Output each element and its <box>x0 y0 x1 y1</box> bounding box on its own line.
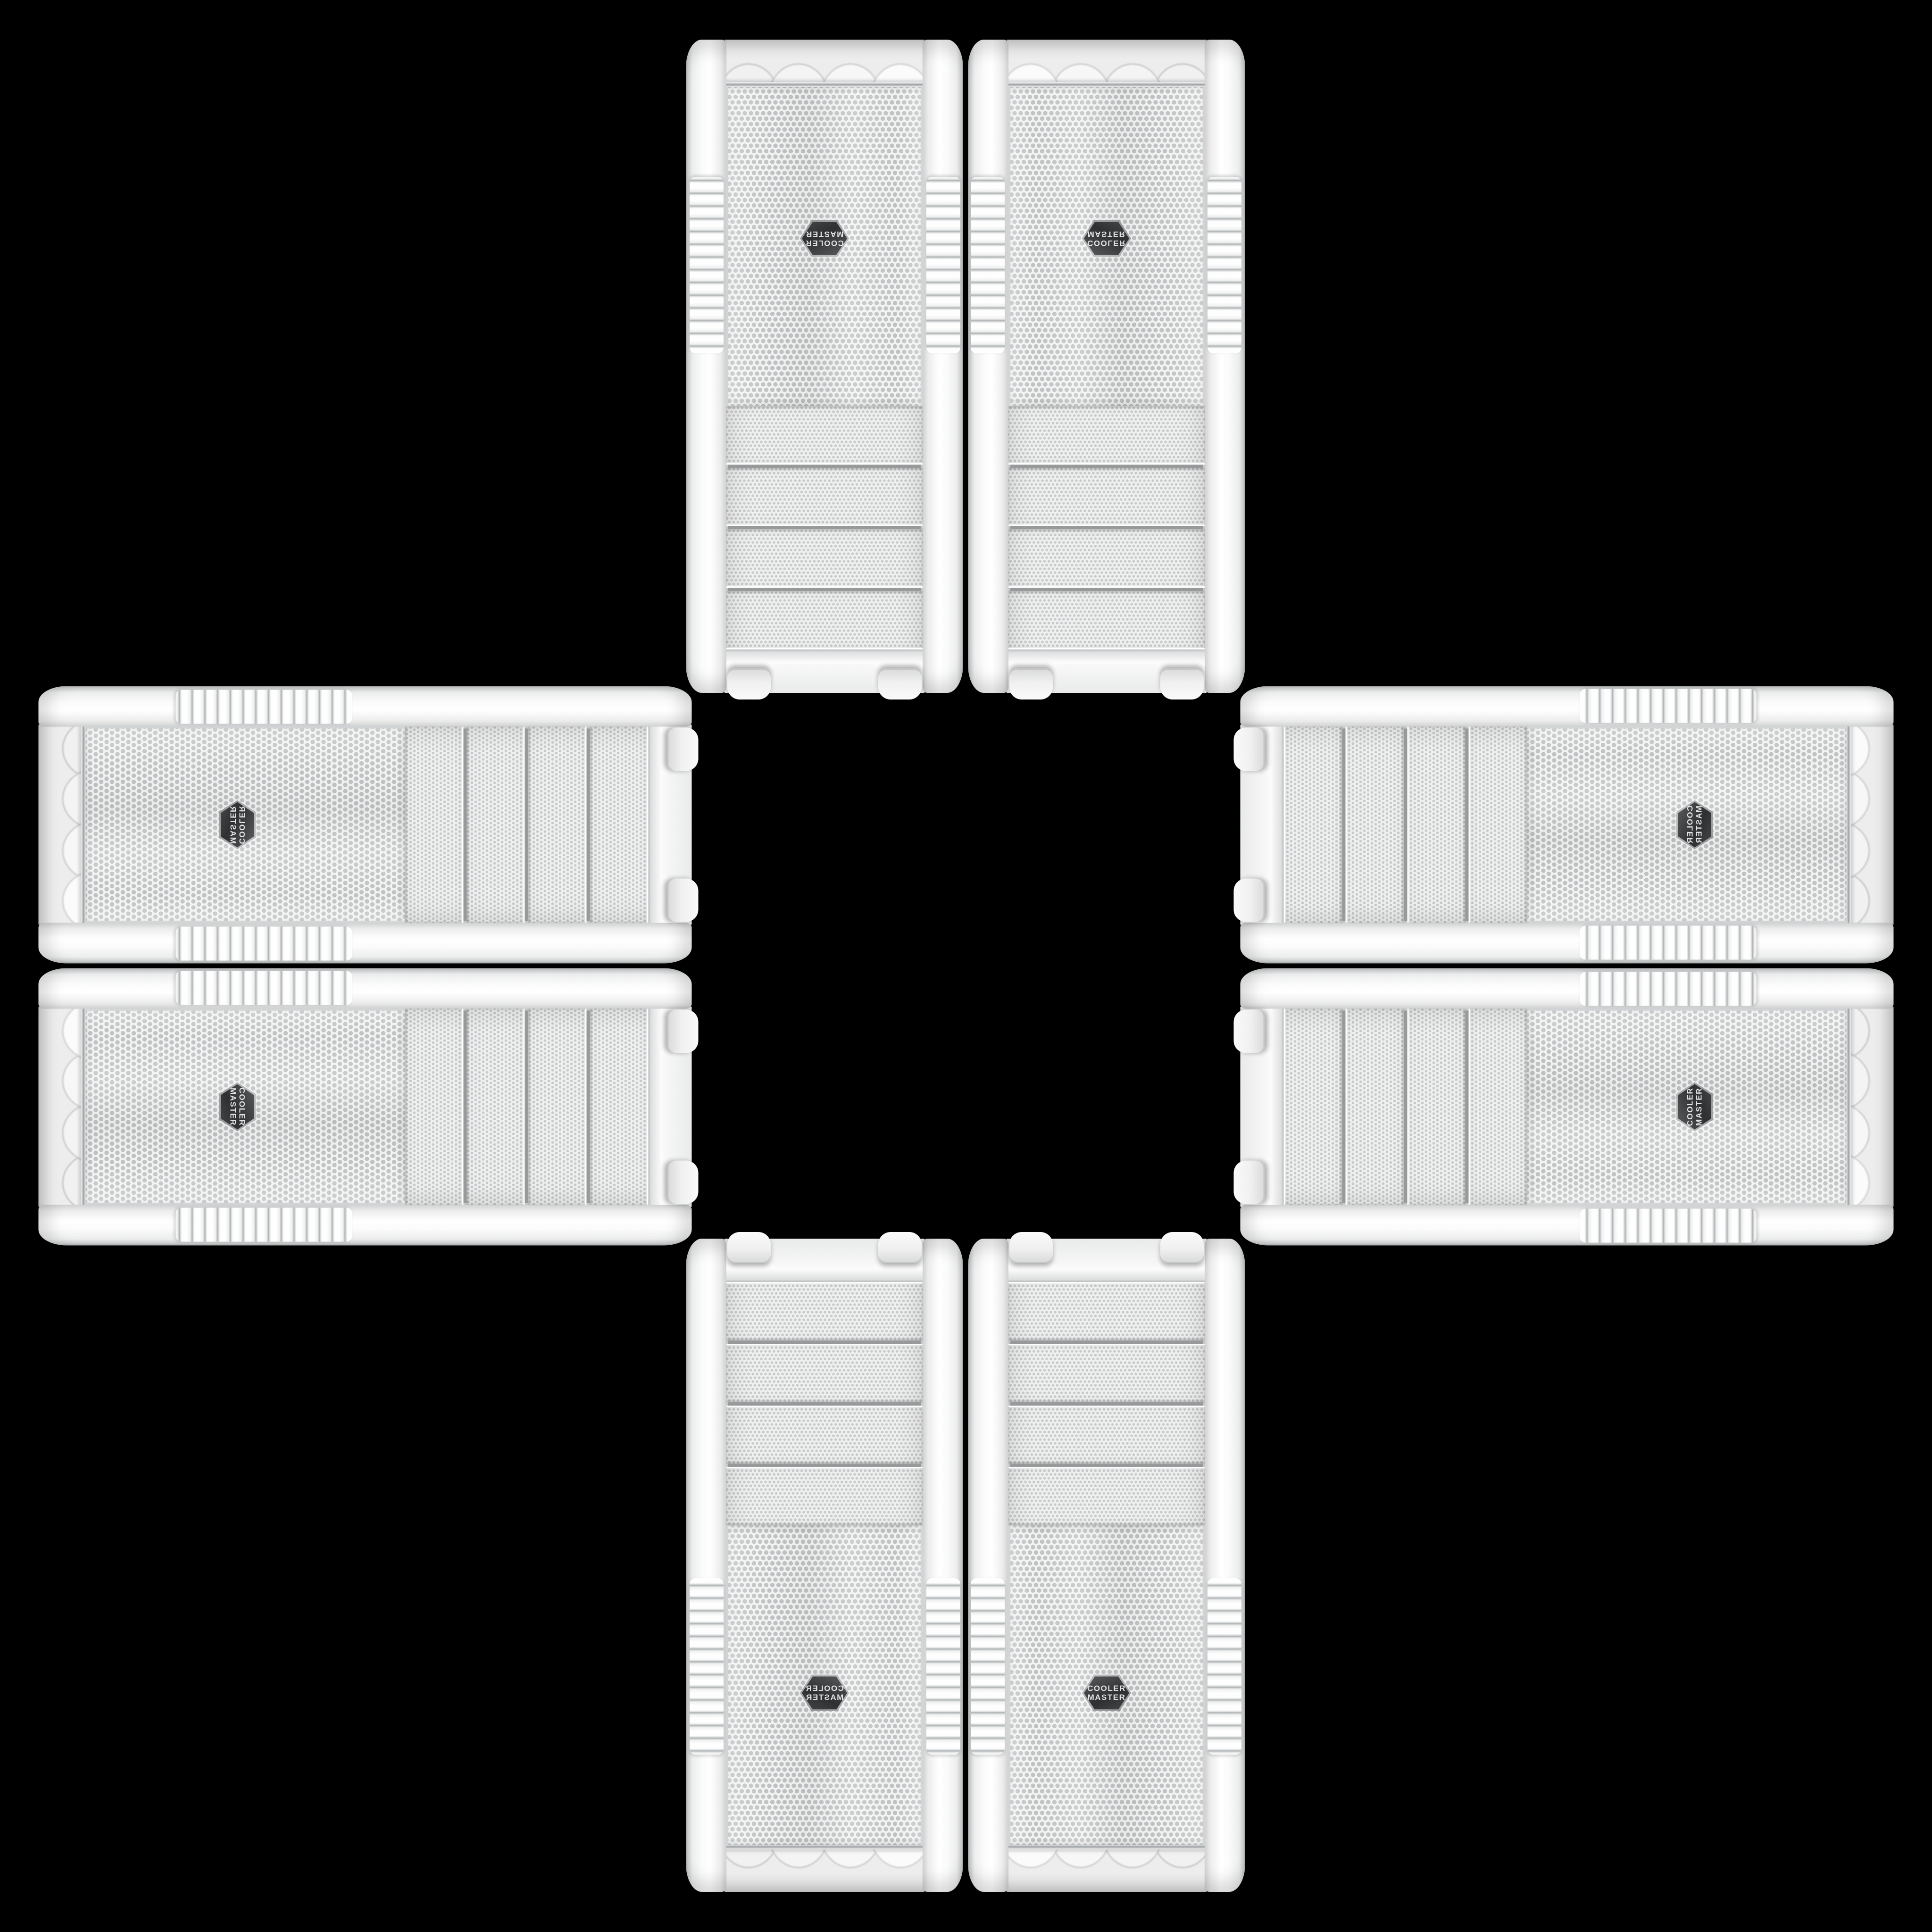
logo-text-line1: COOLER <box>805 1684 844 1693</box>
chrome-trim <box>1847 1008 1851 1206</box>
grip-ridges <box>175 690 352 724</box>
side-rail-right <box>686 40 726 693</box>
logo-text-line1: COOLER <box>1686 806 1695 844</box>
logo-text-line2: MASTER <box>806 1693 844 1702</box>
drive-bay-cover <box>1008 468 1205 526</box>
grip-ridges <box>690 177 724 353</box>
front-mesh-panel: COOLER MASTER <box>726 1525 923 1845</box>
side-rail-right <box>686 1239 726 1892</box>
logo-text-line2: MASTER <box>228 806 237 844</box>
side-rail-left <box>39 923 692 964</box>
drive-bay-cover <box>726 468 923 526</box>
drive-bay-cover <box>726 1344 923 1402</box>
side-rail-right <box>39 686 692 727</box>
drive-bay-cover <box>726 1282 923 1341</box>
front-mesh-panel: COOLER MASTER <box>726 87 923 406</box>
latch-tab-left <box>1234 728 1265 771</box>
pc-case-top-right: COOLER MASTER <box>968 40 1245 693</box>
logo-text-line2: MASTER <box>1695 1088 1704 1126</box>
side-rail-right <box>39 1205 692 1246</box>
chrome-trim <box>81 726 86 924</box>
drive-bay-cover <box>466 1009 525 1205</box>
latch-tab-right <box>1234 879 1265 922</box>
latch-tab-left <box>667 1010 699 1053</box>
front-mesh-panel: COOLER MASTER <box>1527 1009 1847 1205</box>
drive-bay-cover <box>528 1009 587 1205</box>
drive-bay-cover <box>528 727 587 923</box>
pc-case-top-left: COOLER MASTER <box>686 40 963 693</box>
drive-bay-cover <box>726 406 923 465</box>
latch-tab-right <box>727 668 771 700</box>
pc-case-left-top: COOLER MASTER <box>39 686 692 964</box>
drive-bay-covers <box>1284 727 1527 923</box>
bottom-bezel <box>1851 1007 1894 1207</box>
latch-tab-right <box>1160 1232 1204 1263</box>
drive-bay-cover <box>1008 1467 1205 1525</box>
side-rail-left <box>923 1239 963 1892</box>
latch-tab-left <box>878 1232 922 1263</box>
logo-text-line2: MASTER <box>1088 230 1126 239</box>
latch-tab-right <box>1234 1010 1265 1053</box>
drive-bay-covers <box>405 1009 649 1205</box>
drive-bay-cover <box>1469 1009 1527 1205</box>
drive-bay-cover <box>1008 530 1205 588</box>
front-mesh-panel: COOLER MASTER <box>1008 1525 1205 1845</box>
drive-bay-cover <box>1008 1406 1205 1464</box>
logo-text-line1: COOLER <box>805 239 844 248</box>
drive-bay-cover <box>726 530 923 588</box>
logo-text-line2: MASTER <box>806 230 844 239</box>
logo-text-line1: COOLER <box>1087 1684 1126 1693</box>
chrome-trim <box>1008 82 1206 87</box>
drive-bay-covers <box>405 727 649 923</box>
grip-ridges <box>971 1578 1005 1755</box>
latch-tab-left <box>878 668 922 700</box>
logo-text-line1: COOLER <box>1087 239 1126 248</box>
drive-bay-cover <box>1345 727 1404 923</box>
drive-bay-cover <box>1284 1009 1342 1205</box>
pc-case-bottom-left: COOLER MASTER <box>686 1239 963 1892</box>
drive-bay-cover <box>405 727 464 923</box>
grip-ridges <box>926 1578 960 1755</box>
drive-bay-cover <box>1008 1282 1205 1341</box>
drive-bay-cover <box>590 727 649 923</box>
bottom-bezel <box>1007 40 1207 82</box>
side-rail-right <box>1205 40 1245 693</box>
grip-ridges <box>1580 926 1757 960</box>
drive-bay-cover <box>1008 591 1205 650</box>
drive-bay-cover <box>1008 1344 1205 1402</box>
drive-bay-cover <box>1284 727 1342 923</box>
latch-tab-left <box>1009 1232 1053 1263</box>
grip-ridges <box>1580 972 1757 1006</box>
logo-text-line1: COOLER <box>1686 1088 1695 1126</box>
grip-ridges <box>926 177 960 353</box>
side-rail-left <box>1241 686 1894 727</box>
side-rail-left <box>39 968 692 1009</box>
chrome-trim <box>81 1008 86 1206</box>
logo-text-line2: MASTER <box>228 1088 237 1126</box>
pc-case-right-bottom: COOLER MASTER <box>1241 968 1894 1246</box>
drive-bay-cover <box>405 1009 464 1205</box>
drive-bay-cover <box>1407 727 1466 923</box>
chrome-trim <box>725 82 924 87</box>
latch-tab-left <box>1234 1161 1265 1204</box>
front-mesh-panel: COOLER MASTER <box>86 1009 405 1205</box>
grip-ridges <box>175 927 352 961</box>
latch-tab-right <box>1160 668 1204 700</box>
grip-ridges <box>175 1208 352 1242</box>
front-mesh-panel: COOLER MASTER <box>1008 87 1205 406</box>
grip-ridges <box>175 971 352 1005</box>
side-rail-right <box>1205 1239 1245 1892</box>
drive-bay-covers <box>1008 406 1205 650</box>
side-rail-right <box>1241 968 1894 1009</box>
drive-bay-cover <box>1469 727 1527 923</box>
bottom-bezel <box>724 1849 924 1892</box>
grip-ridges <box>1580 689 1757 723</box>
side-rail-left <box>968 40 1008 693</box>
pc-case-right-top: COOLER MASTER <box>1241 686 1894 964</box>
scene-canvas: COOLER MASTER COOLER MASTER <box>0 0 1932 1932</box>
grip-ridges <box>971 177 1005 353</box>
chrome-trim <box>725 1845 924 1849</box>
side-rail-left <box>1241 1205 1894 1246</box>
drive-bay-covers <box>1008 1282 1205 1525</box>
drive-bay-cover <box>466 727 525 923</box>
chrome-trim <box>1847 726 1851 924</box>
bottom-bezel <box>39 725 81 925</box>
chrome-trim <box>1008 1845 1206 1849</box>
side-rail-left <box>968 1239 1008 1892</box>
grip-ridges <box>1580 1209 1757 1243</box>
drive-bay-cover <box>590 1009 649 1205</box>
drive-bay-cover <box>726 1406 923 1464</box>
latch-tab-left <box>1009 668 1053 700</box>
drive-bay-cover <box>1345 1009 1404 1205</box>
latch-tab-left <box>667 879 699 922</box>
bottom-bezel <box>39 1007 81 1207</box>
side-rail-right <box>1241 923 1894 964</box>
drive-bay-covers <box>1284 1009 1527 1205</box>
drive-bay-cover <box>726 591 923 650</box>
front-mesh-panel: COOLER MASTER <box>1527 727 1847 923</box>
drive-bay-covers <box>726 406 923 650</box>
front-mesh-panel: COOLER MASTER <box>86 727 405 923</box>
side-rail-left <box>923 40 963 693</box>
drive-bay-cover <box>1008 406 1205 465</box>
latch-tab-right <box>667 728 699 771</box>
grip-ridges <box>690 1578 724 1755</box>
bottom-bezel <box>1851 725 1894 925</box>
pc-case-left-bottom: COOLER MASTER <box>39 968 692 1246</box>
logo-text-line1: COOLER <box>237 1088 246 1126</box>
grip-ridges <box>1207 177 1241 353</box>
latch-tab-right <box>727 1232 771 1263</box>
latch-tab-right <box>667 1161 699 1204</box>
logo-text-line2: MASTER <box>1695 806 1704 844</box>
grip-ridges <box>1207 1578 1241 1755</box>
bottom-bezel <box>1007 1849 1207 1892</box>
drive-bay-cover <box>1407 1009 1466 1205</box>
logo-text-line2: MASTER <box>1088 1693 1126 1702</box>
pc-case-bottom-right: COOLER MASTER <box>968 1239 1245 1892</box>
drive-bay-covers <box>726 1282 923 1525</box>
drive-bay-cover <box>726 1467 923 1525</box>
logo-text-line1: COOLER <box>237 806 246 844</box>
bottom-bezel <box>724 40 924 82</box>
